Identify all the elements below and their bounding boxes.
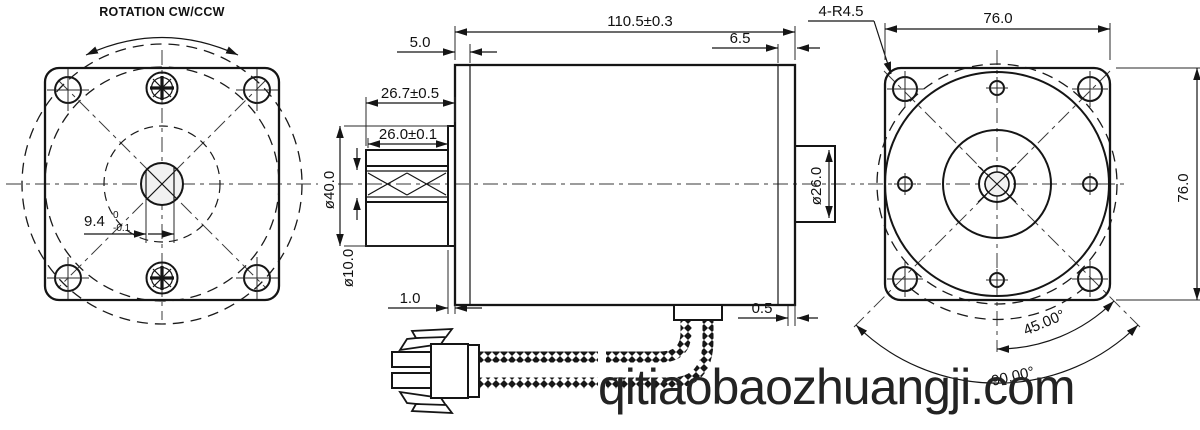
side-view: 110.5±0.3 5.0 6.5 26.7±0.5 26.0±0.1 (321, 13, 864, 413)
dim-overall-length: 110.5±0.3 (607, 13, 673, 30)
connector-rim (468, 345, 479, 397)
connector-latch (412, 404, 452, 413)
dim-width: 76.0 (983, 10, 1012, 27)
dim-height: 76.0 (1175, 173, 1192, 202)
cable-gland (674, 305, 722, 320)
dim-shaft-flat: 9.4 (84, 213, 105, 230)
rear-view: 4-R4.5 76.0 76.0 45.00° 90.00° (808, 3, 1200, 390)
screw-hole (986, 77, 1008, 99)
dim-shaft-diameter: ø10.0 (340, 249, 357, 287)
dim-rear-step: 0.5 (752, 300, 773, 317)
dim-shaft-flat-lower: -0.1 (113, 223, 131, 234)
watermark-text: qitiaobaozhuangji.com (598, 359, 1075, 415)
dim-angle-45: 45.00° (1021, 307, 1068, 340)
dim-shaft-length: 26.7±0.5 (381, 85, 439, 102)
corner-hole (1072, 261, 1108, 297)
dim-angle-45-group: 45.00° (997, 301, 1114, 349)
dim-shaft-diameter-group: ø10.0 (340, 148, 357, 287)
dim-rear-plate-group: 6.5 (712, 30, 820, 63)
dim-rear-boss-diameter: ø26.0 (808, 167, 825, 205)
corner-hole (887, 261, 923, 297)
dim-front-step: 1.0 (400, 290, 421, 307)
motor-body-outline (455, 65, 795, 305)
connector-body (431, 344, 468, 398)
dim-front-plate-group: 5.0 (397, 34, 497, 63)
corner-hole (236, 69, 278, 111)
dim-knurl-length-group: 26.0±0.1 (368, 126, 448, 148)
screw-hole (894, 173, 916, 195)
dim-boss-diameter: ø40.0 (321, 171, 338, 209)
dim-front-plate: 5.0 (410, 34, 431, 51)
dim-corner-radius-group: 4-R4.5 (808, 3, 891, 74)
corner-hole (47, 257, 89, 299)
dim-corner-radius: 4-R4.5 (818, 3, 863, 20)
cable (606, 320, 686, 357)
screw-head (147, 263, 178, 294)
corner-hole (1072, 71, 1108, 107)
connector-pin (392, 352, 431, 367)
connector-pin (392, 373, 431, 388)
screw-hole (986, 269, 1008, 291)
connector (392, 329, 479, 413)
rotation-label: ROTATION CW/CCW (99, 5, 225, 19)
dim-height-group: 76.0 (1116, 68, 1200, 300)
motor-dimension-drawing: ROTATION CW/CCW 9.4 0 -0.1 (0, 0, 1200, 430)
connector-latch (412, 329, 452, 338)
front-view: ROTATION CW/CCW 9.4 0 -0.1 (6, 5, 318, 324)
dim-shaft-flat-upper: 0 (113, 210, 119, 221)
screw-hole (1079, 173, 1101, 195)
dim-rear-plate: 6.5 (730, 30, 751, 47)
corner-hole (887, 71, 923, 107)
dim-knurl-length: 26.0±0.1 (379, 126, 437, 143)
screw-head (147, 73, 178, 104)
technical-drawing-canvas: ROTATION CW/CCW 9.4 0 -0.1 (0, 0, 1200, 430)
corner-hole (236, 257, 278, 299)
